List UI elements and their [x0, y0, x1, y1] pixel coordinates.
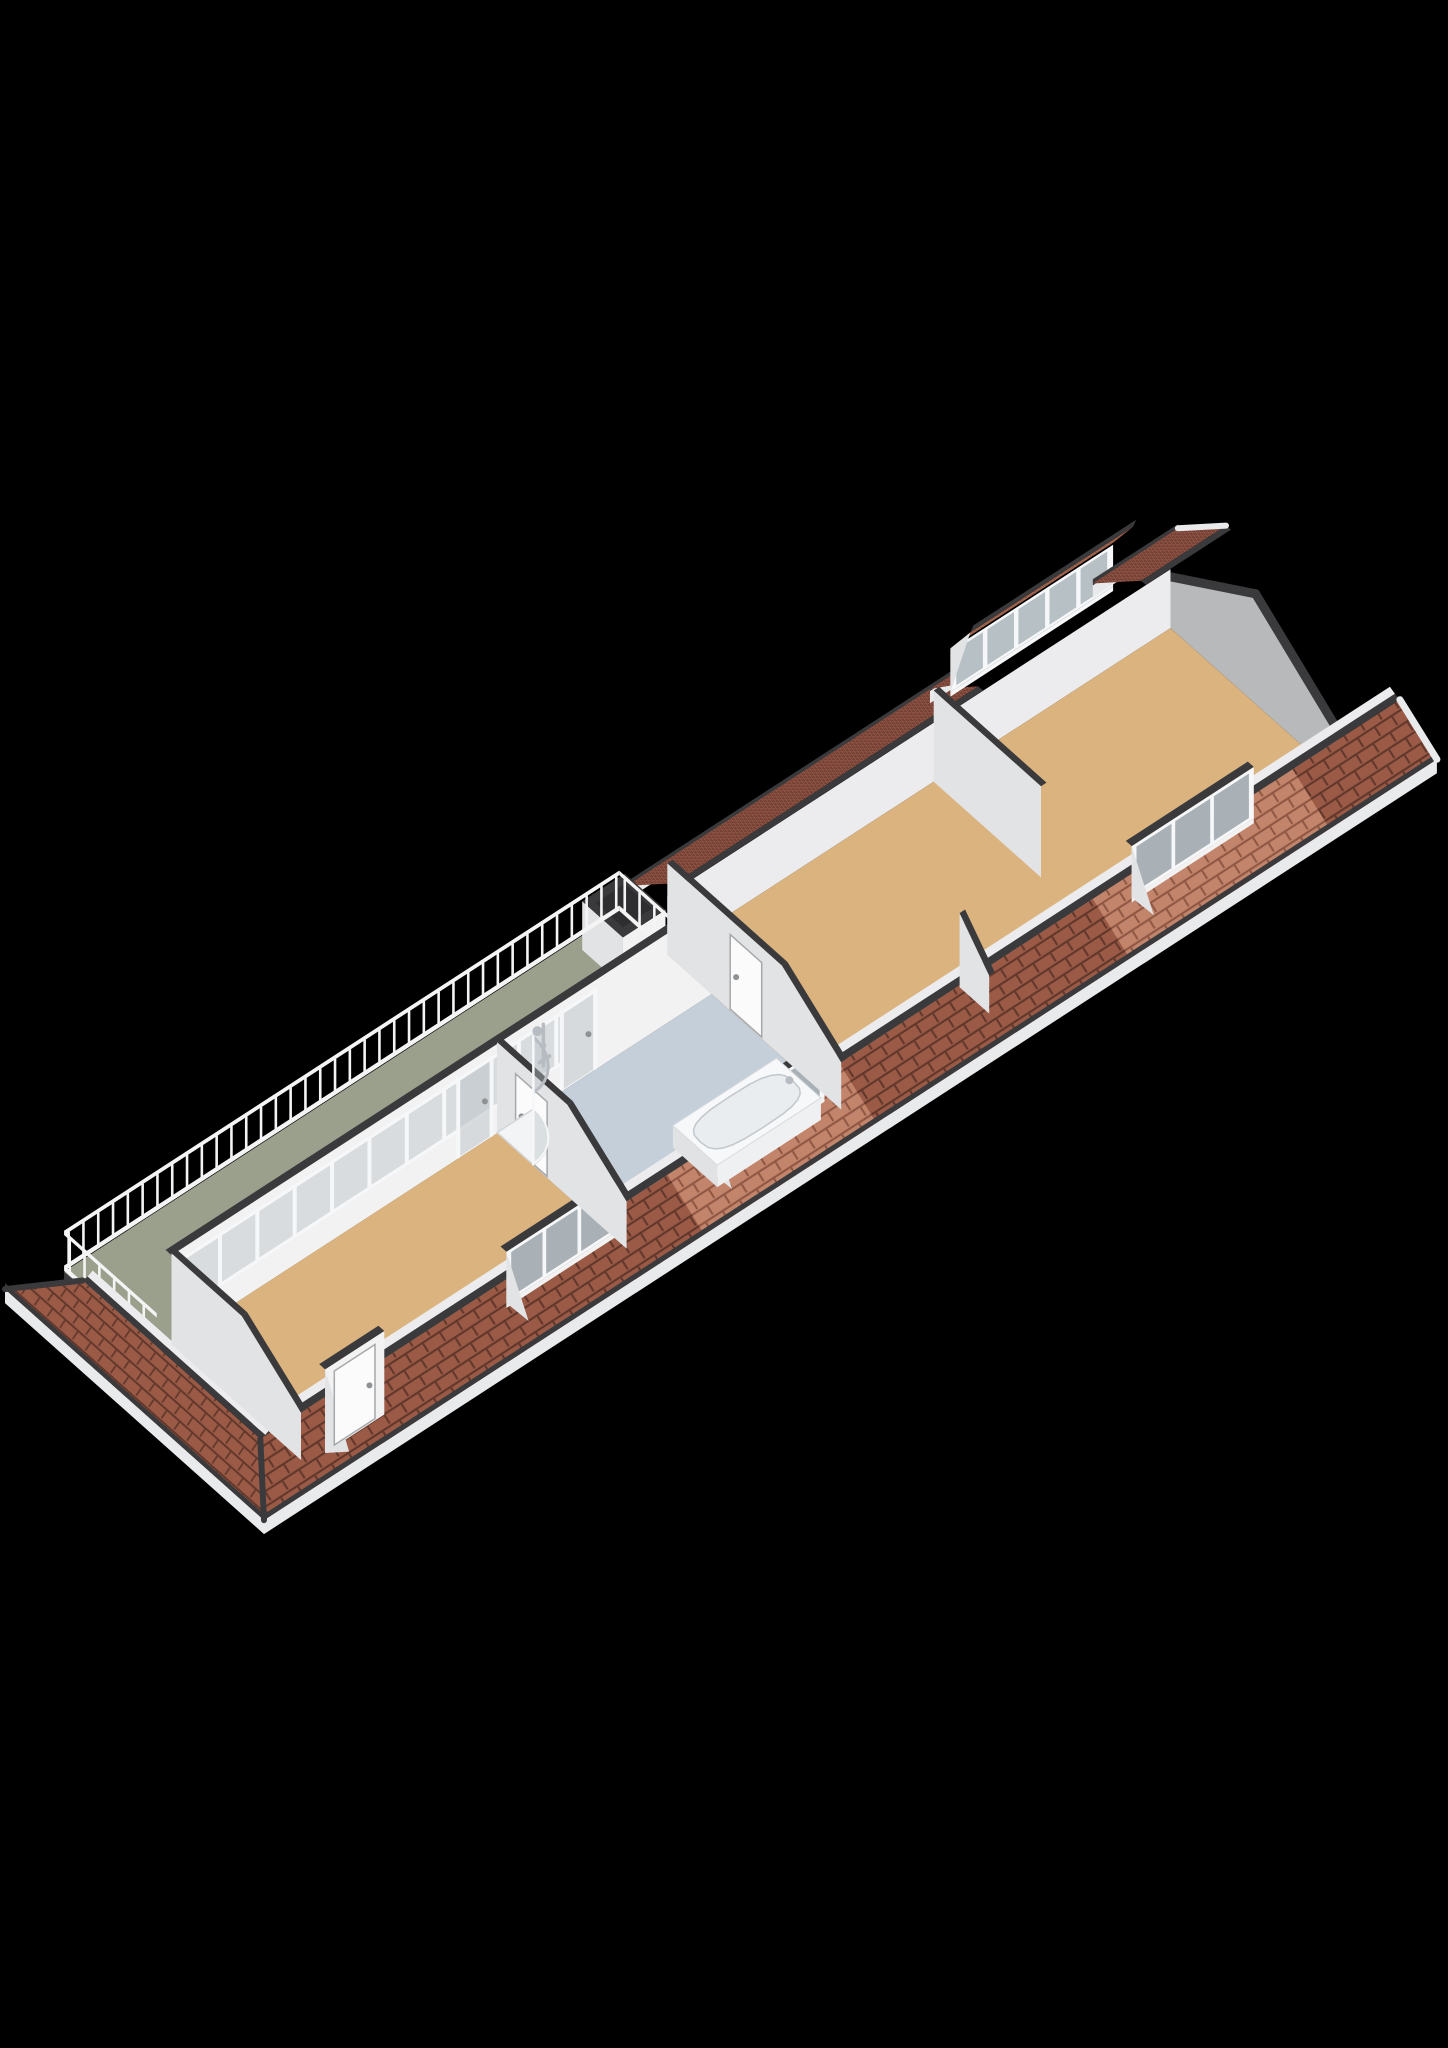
bathtub-tap: [785, 1076, 793, 1084]
hip-ridge-front: [260, 1439, 264, 1520]
shower-head: [532, 1026, 542, 1036]
wall-living-left-door-handle: [733, 974, 739, 980]
dormer-roof-door-door-handle: [366, 1382, 372, 1388]
back-end-slice: [1178, 526, 1226, 529]
shower-hand-set: [540, 1043, 546, 1049]
terrace-door-handle: [585, 1031, 591, 1037]
floorplan-stage: [0, 0, 1448, 2048]
terrace-door-handle: [482, 1098, 488, 1104]
floorplan-3d-scene: [0, 0, 1448, 2048]
